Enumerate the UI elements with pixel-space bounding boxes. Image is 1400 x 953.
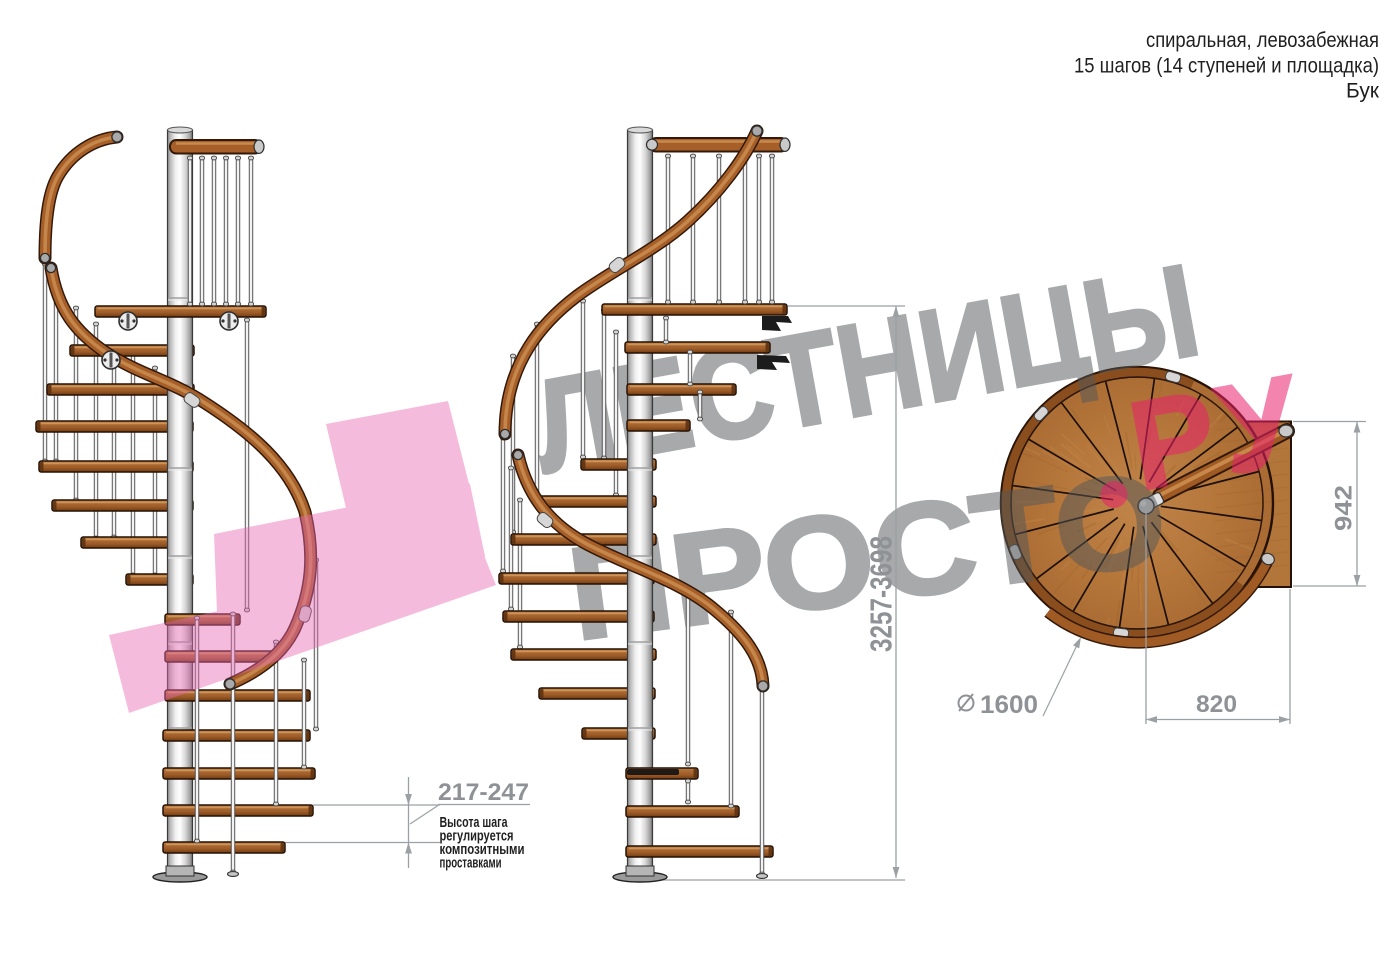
svg-text:217-247: 217-247 — [438, 779, 529, 806]
svg-text:15 шагов (14 ступеней и площад: 15 шагов (14 ступеней и площадка) — [1074, 54, 1379, 78]
svg-text:Бук: Бук — [1346, 79, 1380, 103]
svg-text:820: 820 — [1196, 691, 1237, 718]
svg-text:спиральная, левозабежная: спиральная, левозабежная — [1146, 28, 1379, 52]
svg-text:942: 942 — [1331, 485, 1358, 531]
svg-text:1600: 1600 — [980, 691, 1038, 719]
svg-text:3257-3698: 3257-3698 — [864, 536, 899, 652]
svg-text:проставками: проставками — [440, 856, 502, 872]
